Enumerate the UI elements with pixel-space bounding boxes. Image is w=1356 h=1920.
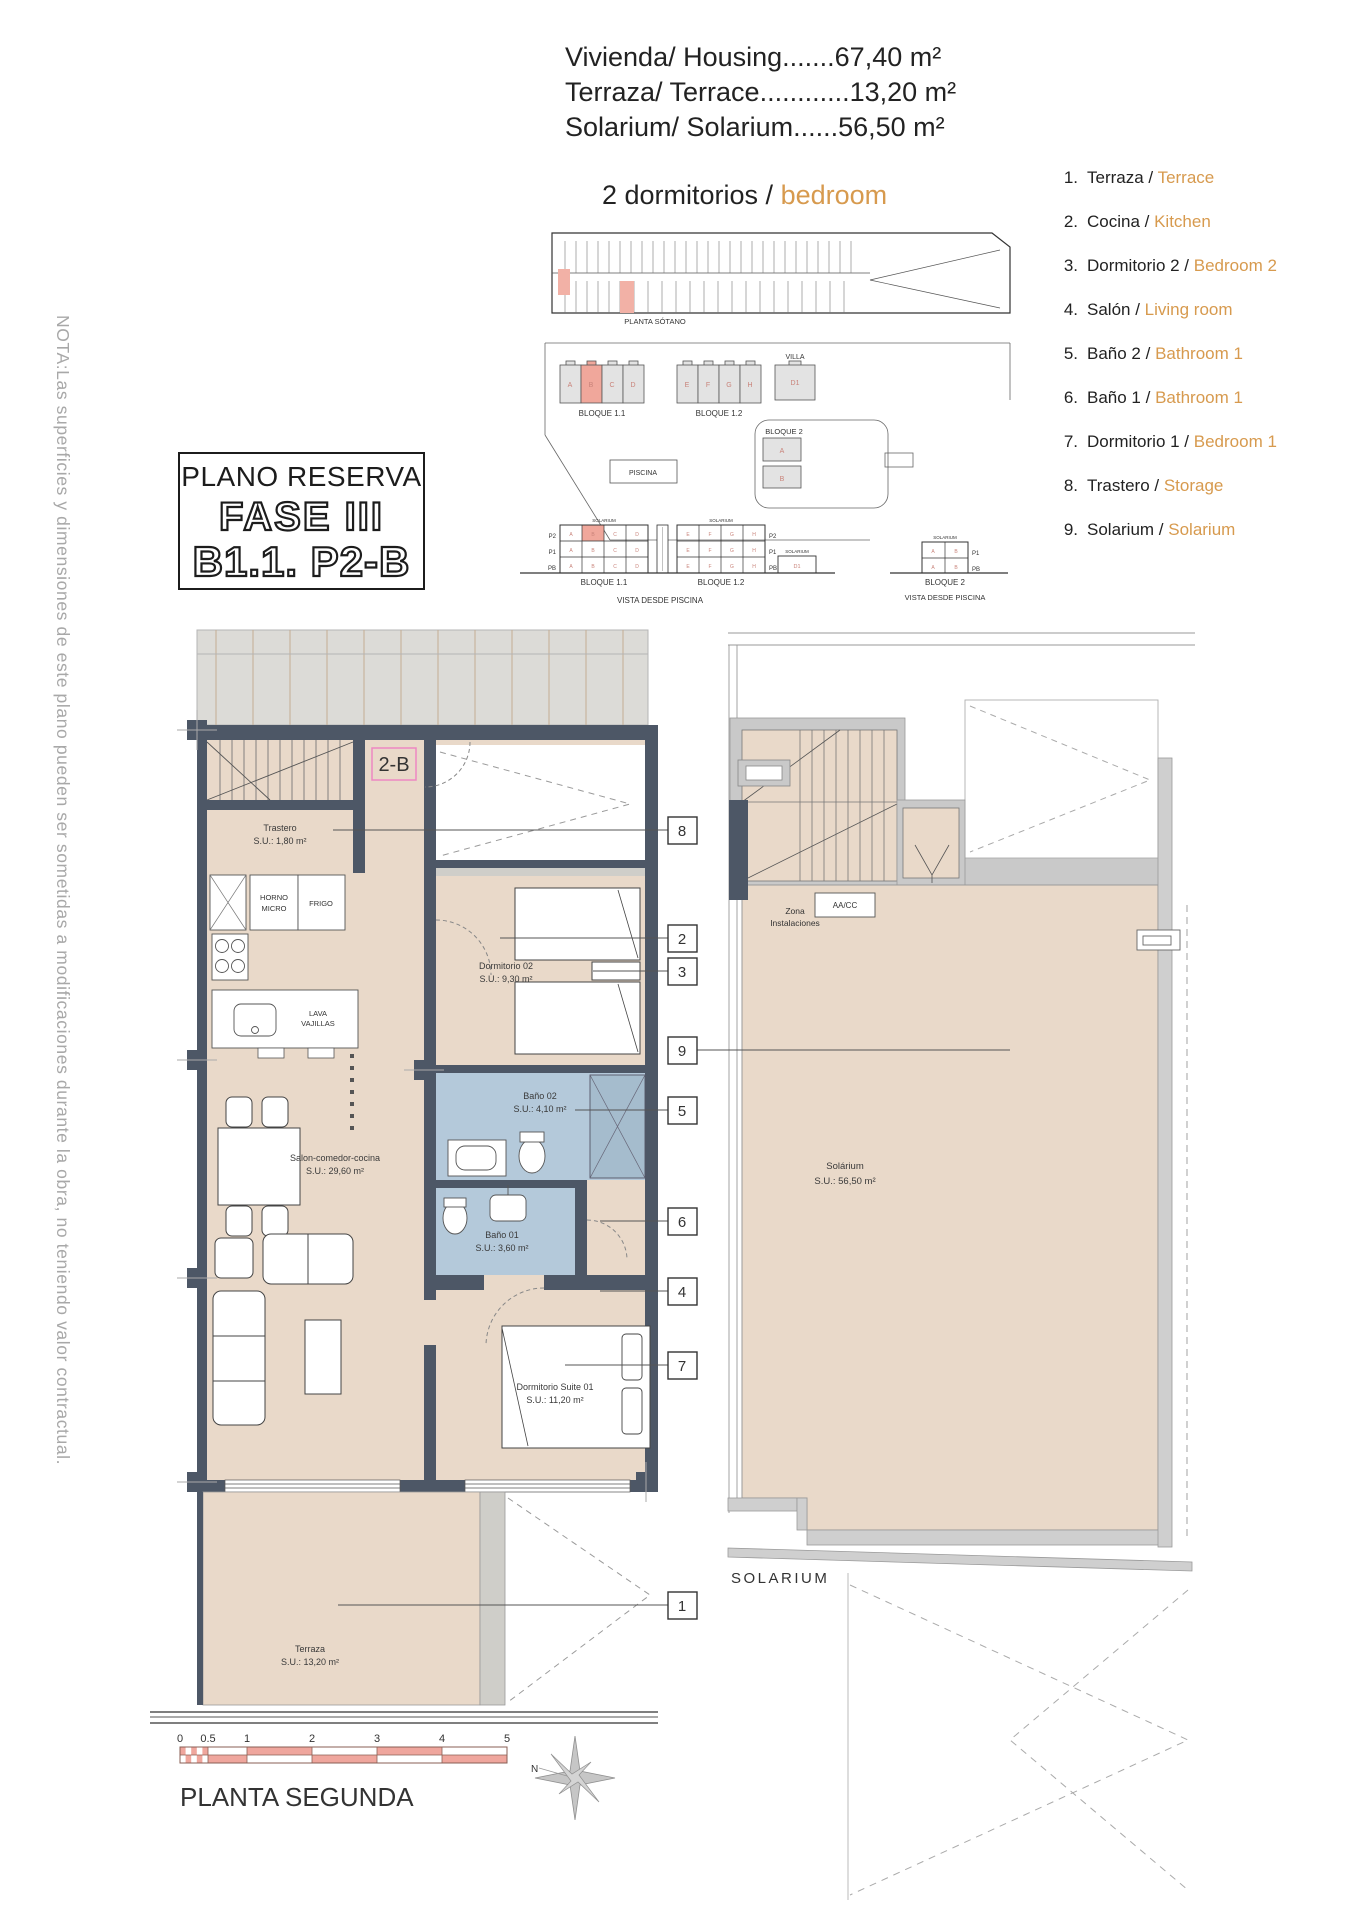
terrace-area: S.U.: 13,20 m² [281, 1657, 339, 1667]
bathroom2-name: Baño 02 [523, 1091, 557, 1101]
svg-text:F: F [706, 382, 710, 389]
legend-item: 2.Cocina / Kitchen [1058, 212, 1348, 232]
svg-text:G: G [730, 564, 734, 570]
storage-name: Trastero [263, 823, 296, 833]
bedroom-suite: Dormitorio Suite 01 S.U.: 11,20 m² [502, 1326, 650, 1448]
legend-item: 9.Solarium / Solarium [1058, 520, 1348, 540]
basement-plan: PLANTA SÓTANO [552, 233, 1010, 326]
svg-text:P1: P1 [972, 551, 980, 557]
suite-area: S.U.: 11,20 m² [526, 1395, 583, 1405]
plan-title-box: PLANO RESERVA FASE III B1.1. P2-B [178, 452, 425, 590]
disclaimer-note: NOTA:Las superficies y dimensiones de es… [52, 315, 73, 1615]
svg-text:F: F [708, 564, 711, 570]
floor-plan-page: Vivienda/ Housing.......67,40 m² Terraza… [0, 0, 1356, 1920]
bedrooms-subtitle-en: bedroom [781, 180, 888, 210]
sidewalk-lines [150, 1712, 658, 1723]
svg-text:SOLARIUM: SOLARIUM [785, 549, 809, 554]
svg-text:1: 1 [244, 1733, 250, 1745]
bathroom1-name: Baño 01 [485, 1230, 519, 1240]
parapet-gate [1137, 930, 1180, 950]
svg-text:B: B [780, 476, 785, 483]
callout-5: 5 [678, 1103, 686, 1120]
svg-text:PB: PB [769, 566, 777, 572]
svg-text:SOLARIUM: SOLARIUM [933, 535, 957, 540]
solarium-area: S.U.: 56,50 m² [814, 1176, 875, 1187]
bloque11-caption: BLOQUE 1.1 [579, 409, 626, 418]
svg-text:PB: PB [548, 566, 556, 572]
svg-text:E: E [685, 382, 690, 389]
svg-text:E: E [686, 548, 690, 554]
svg-text:VILLA: VILLA [785, 354, 804, 361]
svg-text:A: A [569, 548, 573, 554]
projection-dashes [850, 1585, 1188, 1895]
svg-text:H: H [752, 548, 756, 554]
scale-bar: 0 0.5 1 2 3 4 5 [177, 1733, 510, 1763]
svg-text:BLOQUE 1.1: BLOQUE 1.1 [581, 578, 628, 587]
footer-graphics: 0 0.5 1 2 3 4 5 PLANTA SEGUNDA [150, 1730, 670, 1920]
living-room-area: S.U.: 29,60 m² [306, 1166, 364, 1176]
svg-text:BLOQUE 2: BLOQUE 2 [925, 578, 966, 587]
svg-text:SOLARIUM: SOLARIUM [709, 518, 733, 523]
bedroom2-name: Dormitorio 02 [479, 961, 533, 971]
bloque-1-1-units: A B C D BLOQUE 1.1 [560, 361, 644, 418]
unit-code: B1.1. P2-B [180, 539, 423, 585]
vista-caption-1: VISTA DESDE PISCINA [617, 596, 704, 605]
callout-9: 9 [678, 1043, 686, 1060]
dishwasher-label-2: VAJILLAS [301, 1019, 335, 1028]
callout-8: 8 [678, 823, 686, 840]
bloque-2-site: BLOQUE 2 A B [763, 427, 803, 488]
aacc-label: AA/CC [833, 901, 858, 910]
pool-caption: PISCINA [629, 470, 657, 477]
solarium-floor [742, 885, 1158, 1530]
svg-text:A: A [569, 532, 573, 538]
svg-text:H: H [752, 532, 756, 538]
bloque12-caption: BLOQUE 1.2 [696, 409, 743, 418]
svg-text:D: D [635, 548, 639, 554]
svg-text:F: F [708, 548, 711, 554]
svg-text:G: G [730, 548, 734, 554]
area-summary: Vivienda/ Housing.......67,40 m² Terraza… [565, 40, 956, 145]
plan-title: PLANO RESERVA [180, 461, 423, 493]
site-plan: PLANTA SÓTANO A B C D [440, 225, 1020, 620]
svg-text:P1: P1 [549, 550, 557, 556]
solarium-caption: SOLARIUM [731, 1570, 829, 1587]
svg-text:C: C [609, 382, 614, 389]
highlight-parking-1 [558, 269, 570, 295]
solarium-stairs: 19 [730, 718, 965, 906]
svg-text:3: 3 [374, 1733, 380, 1745]
legend-item: 7.Dormitorio 1 / Bedroom 1 [1058, 432, 1348, 452]
svg-text:G: G [730, 532, 734, 538]
svg-text:0.5: 0.5 [200, 1733, 215, 1745]
bloque-1-2-units: E F G H BLOQUE 1.2 [677, 361, 761, 418]
north-label: N [531, 1764, 538, 1775]
legend-item: 5.Baño 2 / Bathroom 1 [1058, 344, 1348, 364]
svg-text:2: 2 [309, 1733, 315, 1745]
svg-text:B: B [591, 564, 595, 570]
callout-7: 7 [678, 1358, 686, 1375]
party-wall [729, 800, 748, 900]
svg-text:C: C [613, 532, 617, 538]
bedrooms-subtitle: 2 dormitorios / bedroom [602, 180, 887, 211]
phase-label: FASE III [180, 495, 423, 539]
roof-band [197, 630, 648, 725]
callout-2: 2 [678, 931, 686, 948]
svg-text:D: D [630, 382, 635, 389]
block-site-plan: A B C D BLOQUE 1.1 E F G H BLOQUE 1.2 VI… [545, 343, 1010, 540]
unit-tag-label: 2-B [378, 754, 409, 776]
terrace-area-line: Terraza/ Terrace............13,20 m² [565, 75, 956, 110]
svg-text:C: C [613, 564, 617, 570]
dishwasher-label-1: LAVA [309, 1009, 327, 1018]
svg-text:D: D [635, 564, 639, 570]
svg-text:P1: P1 [769, 550, 777, 556]
storage-area: S.U.: 1,80 m² [253, 836, 306, 846]
legend-item: 3.Dormitorio 2 / Bedroom 2 [1058, 256, 1348, 276]
svg-text:P2: P2 [549, 534, 557, 540]
bedrooms-subtitle-es: 2 dormitorios / [602, 180, 781, 210]
svg-text:4: 4 [439, 1733, 445, 1745]
basement-caption: PLANTA SÓTANO [624, 317, 686, 326]
legend-item: 1.Terraza / Terrace [1058, 168, 1348, 188]
window-sill [436, 868, 645, 876]
compass-rose: N [531, 1736, 615, 1820]
svg-text:F: F [708, 532, 711, 538]
svg-text:H: H [747, 382, 752, 389]
bathroom1-area: S.U.: 3,60 m² [475, 1243, 528, 1253]
legend-item: 4.Salón / Living room [1058, 300, 1348, 320]
fridge-label: FRIGO [309, 899, 333, 908]
svg-text:H: H [752, 564, 756, 570]
legend-item: 6.Baño 1 / Bathroom 1 [1058, 388, 1348, 408]
legend-item: 8.Trastero / Storage [1058, 476, 1348, 496]
zona-label-2: Instalaciones [770, 918, 820, 928]
svg-text:B: B [589, 382, 594, 389]
svg-text:D1: D1 [793, 564, 800, 570]
suite-name: Dormitorio Suite 01 [516, 1382, 593, 1392]
callout-4: 4 [678, 1284, 686, 1301]
svg-text:0: 0 [177, 1733, 183, 1745]
callout-1: 1 [678, 1598, 686, 1615]
void-upper [436, 745, 645, 860]
callout-6: 6 [678, 1214, 686, 1231]
bedroom2-area: S.U.: 9,30 m² [479, 974, 532, 984]
callout-3: 3 [678, 964, 686, 981]
solarium-plan: 19 Zona Instalaciones AA/CC Solárium [700, 590, 1200, 1920]
villa-site: VILLA D1 [775, 354, 815, 400]
svg-text:PB: PB [972, 567, 980, 573]
svg-text:G: G [726, 382, 731, 389]
svg-text:A: A [568, 382, 573, 389]
svg-text:E: E [686, 532, 690, 538]
solarium-area-line: Solarium/ Solarium......56,50 m² [565, 110, 956, 145]
solarium-name: Solárium [826, 1161, 864, 1172]
terrace-name: Terraza [295, 1644, 325, 1654]
highlight-parking-2 [620, 281, 634, 313]
zona-label-1: Zona [785, 906, 805, 916]
svg-text:BLOQUE 1.2: BLOQUE 1.2 [698, 578, 745, 587]
apartment-plan: 2-B Trastero S.U.: 1,80 m² HORNO MICRO F… [150, 620, 710, 1730]
svg-text:D1: D1 [791, 380, 800, 387]
svg-text:SOLARIUM: SOLARIUM [592, 518, 616, 523]
housing-area-line: Vivienda/ Housing.......67,40 m² [565, 40, 956, 75]
svg-text:B: B [591, 548, 595, 554]
oven-label-1: HORNO [260, 893, 288, 902]
svg-text:P2: P2 [769, 534, 777, 540]
terrace: Terraza S.U.: 13,20 m² [197, 1492, 650, 1705]
void-right [965, 700, 1158, 858]
svg-text:D: D [635, 532, 639, 538]
bathroom2-area: S.U.: 4,10 m² [513, 1104, 566, 1114]
svg-text:5: 5 [504, 1733, 510, 1745]
svg-text:BLOQUE 2: BLOQUE 2 [765, 427, 803, 436]
oven-label-2: MICRO [262, 904, 287, 913]
sidewalk-band [728, 1548, 1192, 1571]
floor-name: PLANTA SEGUNDA [180, 1782, 414, 1812]
svg-text:E: E [686, 564, 690, 570]
svg-text:A: A [780, 448, 785, 455]
svg-text:A: A [569, 564, 573, 570]
svg-text:C: C [613, 548, 617, 554]
living-room-name: Salon-comedor-cocina [290, 1153, 380, 1163]
